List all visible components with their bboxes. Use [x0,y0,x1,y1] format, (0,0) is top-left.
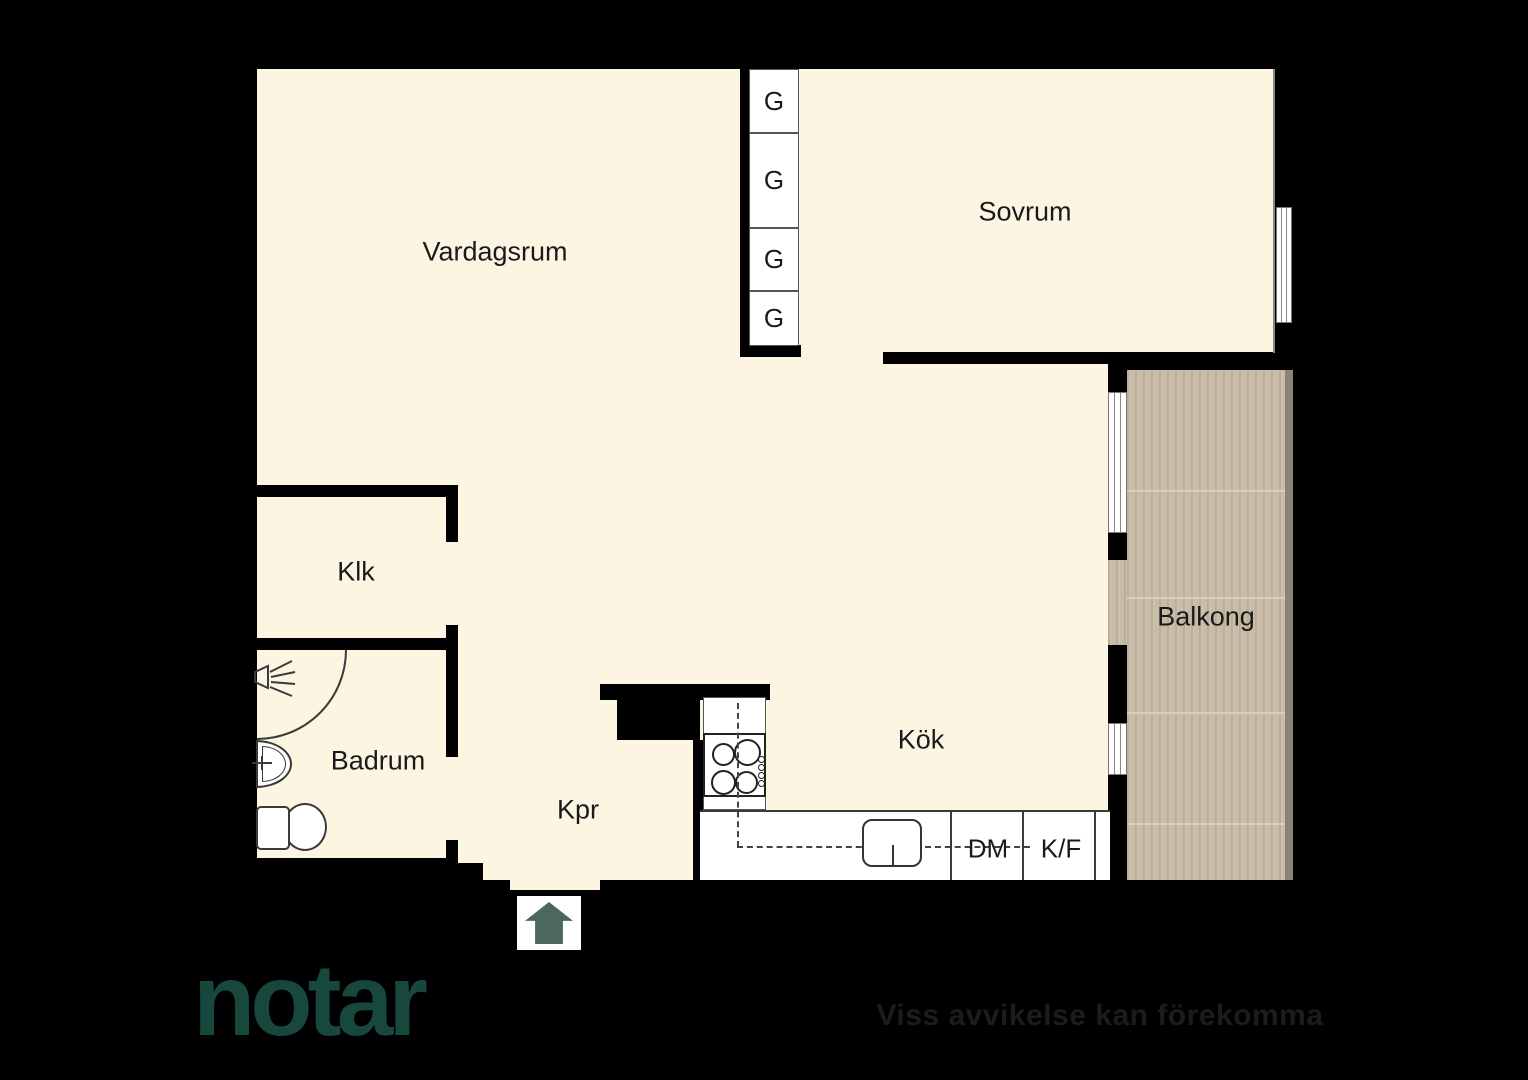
floor-entry-vestibule [510,880,600,890]
window-pane-line [1114,724,1115,774]
wall-kitchen-block [617,700,700,740]
wall-balcony-corner [1108,352,1127,392]
window-pane-line [1114,393,1115,532]
wardrobe-label: G [764,244,784,275]
window-pane-line [1120,393,1121,532]
stove-knob [758,764,765,771]
disclaimer-text: Viss avvikelse kan förekomma [876,999,1323,1033]
kitchen-sink-icon [862,819,922,867]
wall-klk-stub [446,497,458,542]
appliance-label-kf: K/F [1041,834,1081,865]
wardrobe-label: G [764,303,784,334]
wall-balcony-seg-c [1108,645,1127,723]
wall-sovrum-bottom [883,352,1293,364]
bathroom-sink-inner [262,746,286,782]
toilet-tank-icon [256,806,290,850]
entrance-arrow-icon [525,902,573,944]
balcony-seam [1127,712,1285,714]
balcony-railing [1285,370,1293,880]
wall-badrum-east [446,625,458,757]
wall-wardrobe-cap [740,345,801,357]
sovrum-window [1276,207,1292,323]
balcony-door-opening [1108,560,1127,645]
room-label-sovrum: Sovrum [978,197,1071,228]
wall-badrum-bottom [240,858,458,872]
wardrobe-g2: G [749,133,799,228]
room-label-kpr: Kpr [557,795,599,826]
counter-divider [1094,810,1096,880]
appliance-label-dm: DM [968,834,1008,865]
floorplan-canvas: G G G G V [0,0,1528,1080]
window-pane-line [1120,724,1121,774]
kitchen-balcony-window-lower [1108,723,1127,775]
stove-burner-box [703,733,766,797]
window-pane-line [1281,208,1282,322]
kitchen-balcony-window-upper [1108,392,1127,533]
window-pane-line [1286,208,1287,322]
stove-burner [712,743,735,766]
counter-divider [950,810,952,880]
wall-balcony-seg-b [1108,533,1127,560]
shower-head-icon [252,658,300,704]
room-label-kok: Kök [898,725,945,756]
balcony-seam [1127,490,1285,492]
balcony-seam [1127,823,1285,825]
entrance-box [517,896,581,950]
room-label-badrum: Badrum [331,746,426,777]
stove-knob [758,772,765,779]
wardrobe-column: G G G G [749,69,799,346]
sink-divider-line [892,845,894,867]
wardrobe-label: G [764,86,784,117]
wardrobe-g3: G [749,228,799,291]
wall-klk-top [250,485,458,497]
room-label-vardagsrum: Vardagsrum [422,237,567,268]
wardrobe-g1: G [749,69,799,133]
counter-dashed-line-vertical [737,703,739,847]
wardrobe-g4: G [749,291,799,346]
wall-balcony-seg-d [1108,775,1127,880]
sink-tap-line [261,756,263,770]
stove-knob [758,756,765,763]
counter-divider [1022,810,1024,880]
sovrum-right-edge [1273,69,1275,353]
room-label-balkong: Balkong [1157,602,1255,633]
balcony-seam [1127,597,1285,599]
wall-wardrobe-left [740,69,749,357]
wardrobe-label: G [764,165,784,196]
floor-main-band [257,353,1108,863]
stove-burner [711,770,736,795]
stove-knob [758,780,765,787]
room-label-klk: Klk [337,557,375,588]
wall-klk-badrum-divider [250,638,450,650]
notar-logo: notar [193,942,423,1059]
